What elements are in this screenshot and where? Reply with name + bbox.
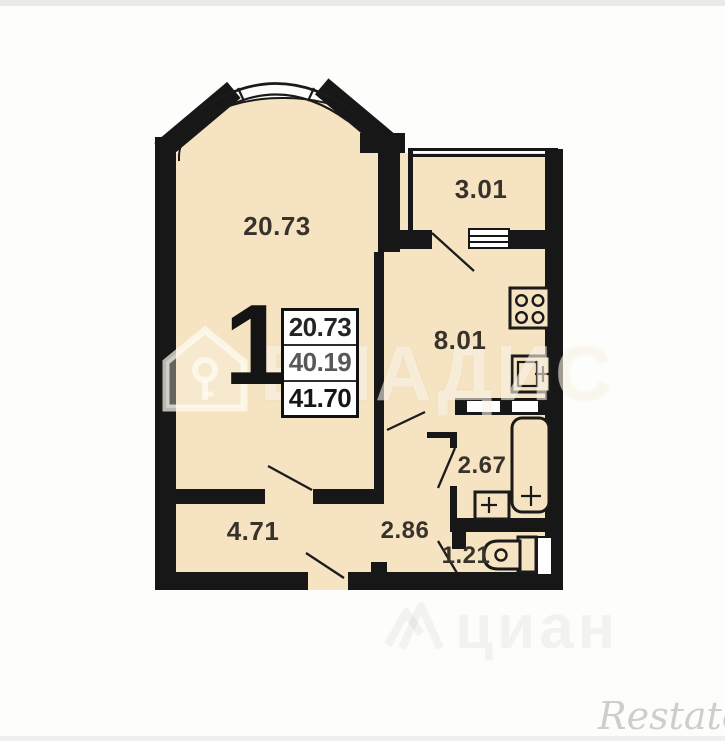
floor-plan-image: ВЛАДИС циан Restate 1 20.73 40.19 41.70 … xyxy=(0,0,725,741)
livingroom-door-swing xyxy=(268,466,312,490)
room-area-label-balcony: 3.01 xyxy=(441,174,521,205)
stove-icon xyxy=(510,288,549,328)
living-area-value: 20.73 xyxy=(284,311,356,346)
room-area-label-bathroom: 2.67 xyxy=(442,452,522,480)
watermark-restate: Restate xyxy=(598,694,725,738)
bay-window-arc xyxy=(196,84,356,122)
watermark-cian: циан xyxy=(455,592,619,663)
entry-door-swing xyxy=(306,553,344,578)
unit-number: 1 xyxy=(224,294,287,398)
area-summary-box: 20.73 40.19 41.70 xyxy=(281,308,359,418)
cian-logo-icon xyxy=(388,606,440,648)
room-area-label-corridor: 2.86 xyxy=(365,517,445,545)
bath-sink-icon xyxy=(475,492,509,519)
total-area-value: 41.70 xyxy=(284,382,356,415)
room-area-label-living: 20.73 xyxy=(227,211,327,242)
room-area-label-wc: 1.21 xyxy=(426,542,506,570)
balcony-door-swing xyxy=(432,233,474,271)
room-area-label-hallway: 4.71 xyxy=(213,516,293,547)
room-area-label-kitchen: 8.01 xyxy=(420,325,500,356)
usable-area-value: 40.19 xyxy=(284,346,356,381)
